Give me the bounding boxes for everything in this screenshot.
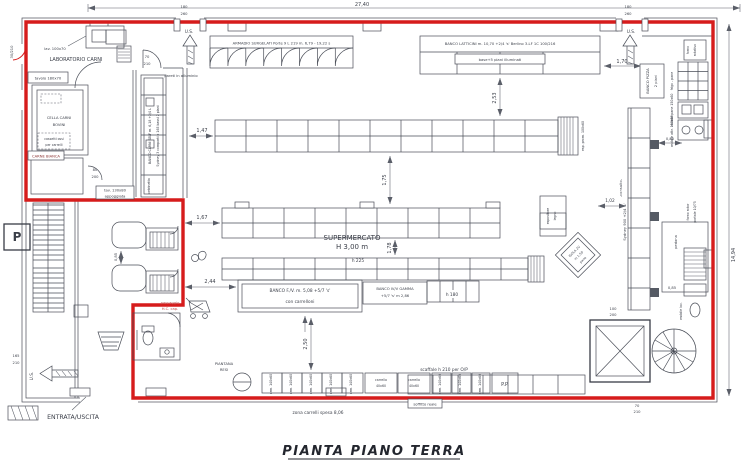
armadio-surgelati: ARMADIO SURGELATI Porte 9 L 219 m. 6,79 …: [210, 36, 353, 68]
sink-label: lav. 100x70: [44, 47, 66, 51]
banco-fv: BANCO F./V. m. 5,08 +5/7 's' con carrell…: [185, 279, 362, 332]
scaffale-label: scaffale h 210 per O/P: [420, 367, 468, 373]
partition-note: pareti in alluminio: [164, 74, 198, 78]
dim-top: 27,40: [355, 2, 369, 8]
banco-latticini-note: base+5 piani illuminati: [479, 58, 522, 62]
soffione-box-label: soffitto reale: [413, 403, 437, 407]
page-title: PIANTA PIANO TERRA: [282, 444, 465, 459]
gondola-row-2: espositore legno 1,67 1,75: [185, 156, 566, 238]
door-100-label: 100: [609, 307, 617, 311]
door-70-bottom-label: 70: [635, 404, 640, 408]
door-165-label: 165: [12, 354, 20, 358]
cassetti-label2: per carrelli: [45, 143, 62, 147]
cell-label: arm. 140x60: [438, 374, 442, 394]
h225-label: h 225: [352, 258, 365, 264]
carrello-cell-size: 40x60: [409, 384, 419, 388]
room-label-lab-carni: LABORATORIO CARNI: [50, 57, 103, 63]
dim-right: 14,94: [731, 248, 737, 262]
gondola-row-3: 1,78 h 225: [222, 240, 544, 282]
carrello-cell-size: 40x60: [376, 384, 386, 388]
banco-fv-note: con carrelloni: [285, 299, 314, 305]
laboratorio-carni-area: lav. 100x70 LABORATORIO CARNI tavolo 180…: [28, 26, 134, 199]
carrello-cell: carrello: [408, 378, 420, 382]
door-size: 260: [624, 12, 632, 16]
banco-latticini: BANCO LATTICINI m. 10,70 +2/4 's' Berlin…: [420, 36, 641, 116]
cella-carni-label2: BOVINI: [53, 123, 66, 127]
door-size: 180: [180, 5, 188, 9]
gondola-row-1: esp. prom. 100x60 1,47: [189, 117, 585, 155]
mobile-lav-label: mobile lav.: [679, 302, 683, 319]
door-70-label2: 210: [143, 62, 151, 66]
door-70-label: 70: [145, 55, 150, 59]
entrance-label: ENTRATA/USCITA: [47, 414, 100, 421]
door-size: 260: [180, 12, 188, 16]
sink: [160, 348, 174, 357]
dim-085-lower: 0,85: [668, 286, 677, 290]
dim-244: 2,44: [204, 279, 215, 285]
door-70-bottom-label2: 210: [633, 410, 641, 414]
cell-label: arm. 140x60: [289, 374, 293, 394]
door-80-label: 80: [93, 168, 98, 172]
piantana-label: PIANTANA: [215, 362, 234, 366]
room-label-supermercato: SUPERMERCATO: [324, 234, 381, 242]
right-service-column: forno rotativo frigo - pane mobile pane …: [598, 40, 708, 320]
espositore-legno-label: espositore: [546, 208, 550, 225]
cell-label: arm. 140x60: [478, 374, 482, 394]
elevator-shaft: 100 200: [590, 307, 650, 382]
zona-carrelli-label: zona carrelli spesa 8,06: [293, 410, 344, 416]
drawing-title: PIANTA PIANO TERRA: [282, 444, 465, 459]
overall-dimensions: 27,40 14,94: [88, 2, 740, 396]
spiral-staircase: [652, 329, 696, 373]
exit-arrow: [40, 366, 78, 381]
us-exit-label: U.S.: [29, 372, 35, 381]
red-sales-area-outline: [13, 22, 713, 398]
consulto-label: -consulto-: [619, 178, 623, 197]
parking-sign: P: [13, 230, 22, 244]
toilet: [143, 331, 153, 345]
staircase: [33, 203, 64, 312]
tav130-label: tav. 130x80: [104, 189, 127, 193]
dim-175: 1,75: [382, 174, 388, 185]
banco-latticini-label: BANCO LATTICINI m. 10,70 +2/4 's' Berlin…: [445, 42, 556, 46]
bottom-fixture-row: PIANTANA RESI arm. 140x60 arm. 140x60 ar…: [215, 362, 585, 416]
sydney900-label: Sydney 900 +2/4 's': [623, 203, 627, 240]
vetrinetta-label: vetrinetta: [147, 178, 151, 194]
door-30x210-label: 30/210: [10, 45, 14, 59]
door-80-label2: 200: [91, 175, 99, 179]
dim-085: 0,85: [114, 252, 118, 261]
frigo-pane-label: frigo - pane: [670, 72, 674, 90]
carrello-cell: carrello: [375, 378, 387, 382]
forno-label: forno rotor: [686, 203, 690, 221]
exit-door-top-right: 180 260 U.S.: [616, 5, 648, 64]
esp-prom-label: esp. prom. 100x60: [581, 121, 585, 151]
forno-label2: portale 10/75: [693, 201, 697, 223]
person-figure: [192, 255, 199, 262]
dim-178: 1,78: [387, 242, 393, 253]
banco-fv-label: BANCO F./V. m. 5,08 +5/7 's': [270, 288, 331, 294]
table-label: tavolo 180x70: [35, 77, 62, 81]
us-label: U.S.: [627, 29, 636, 35]
cella-carni-label: CELLA CARNI: [47, 116, 71, 120]
banco-carni-self-model: Sydney 3 comparti x 165 bassi 2 piani: [156, 105, 160, 166]
banco-pizza-label: BANCO PIZZA: [646, 68, 650, 94]
banco-gamma-label: BANCO IV/V GAMMA: [376, 287, 414, 291]
passaggio-label2: H.C. cap.: [162, 307, 179, 311]
floor-plan: 27,40 14,94 30/210 180 260 U.S. 180 260 …: [0, 0, 748, 467]
carne-bianca-label: CARNE BIANCA: [32, 155, 60, 159]
shopping-cart: [186, 298, 210, 312]
tav130-label2: appoggiata: [105, 195, 126, 199]
pedana-label: pedana: [674, 235, 678, 249]
door-165-label2: 210: [12, 361, 20, 365]
banco-gamma-note: +5/7 's' m 2,86: [381, 294, 410, 298]
dim-170: 1,70: [616, 59, 627, 65]
dim-167: 1,67: [196, 215, 207, 221]
room-height-label: H 3,00 m: [336, 243, 368, 251]
dim-085-right: 0,85: [666, 137, 675, 141]
forno-sup-label: forno: [686, 46, 690, 54]
dim-250: 2,50: [303, 338, 309, 349]
cell-label: arm. 140x60: [309, 374, 313, 394]
wc-area: passaggio H.C. cap. 2,50: [74, 301, 311, 370]
exit-door-top-left: 180 260 U.S.: [174, 5, 206, 64]
mobile-attr-label: mobile attr. 150x60: [670, 115, 674, 146]
piantana-label2: RESI: [220, 368, 228, 372]
dim-147: 1,47: [196, 128, 207, 134]
floor-plan-sheet: 27,40 14,94 30/210 180 260 U.S. 180 260 …: [0, 0, 748, 467]
building-walls: [19, 15, 717, 404]
dim-253: 2,53: [492, 92, 498, 103]
dim-102: 1,02: [605, 198, 615, 204]
door-100-label2: 200: [609, 313, 617, 317]
forno-sup-label2: rotativo: [693, 44, 697, 56]
banco-carni-self: BANCO CARNI SELF m. 6,18 +2/4 L Sydney 3…: [141, 75, 166, 197]
h180-label: h 180: [446, 292, 459, 298]
banco-carni-self-label: BANCO CARNI SELF m. 6,18 +2/4 L: [148, 108, 152, 164]
cell-label: arm. 140x60: [269, 374, 273, 394]
cell-label: arm. 140x60: [329, 374, 333, 394]
armadio-surgelati-label: ARMADIO SURGELATI Porte 9 L 219 m. 6,79 …: [233, 42, 331, 46]
cell-label: arm. 140x60: [349, 374, 353, 394]
banco-pizza-label2: 2 piani: [654, 75, 658, 88]
banco-gamma: BANCO IV/V GAMMA +5/7 's' m 2,86 h 180: [363, 281, 479, 304]
us-label: U.S.: [185, 29, 194, 35]
door-size: 180: [624, 5, 632, 9]
supermercato-label: SUPERMERCATO H 3,00 m: [324, 234, 381, 251]
passaggio-label: passaggio: [161, 301, 180, 305]
cell-label: arm. 140x60: [458, 374, 462, 394]
cassetti-label: cassetti ossi: [44, 137, 64, 141]
